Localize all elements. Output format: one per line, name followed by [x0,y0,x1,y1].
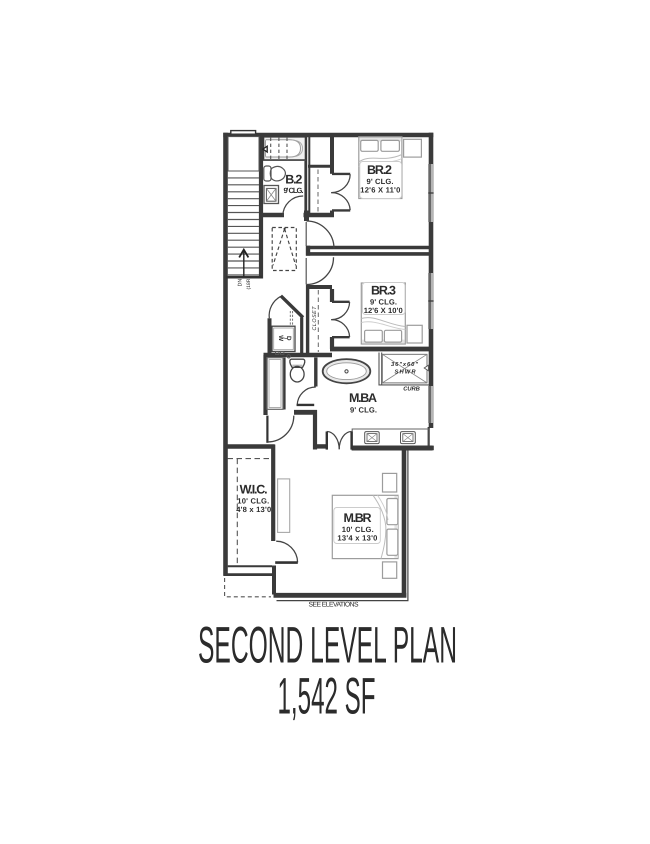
svg-text:9' CLG.: 9' CLG. [284,186,304,195]
svg-text:D: D [285,336,292,341]
svg-text:13'4 x 13'0: 13'4 x 13'0 [337,534,377,543]
svg-text:M.BR: M.BR [344,511,372,525]
svg-text:DN: DN [238,279,244,287]
svg-text:(18R): (18R) [246,277,252,290]
svg-text:SHWR: SHWR [395,369,417,376]
svg-text:1,542 SF: 1,542 SF [278,666,376,724]
svg-text:M.BA: M.BA [349,391,377,405]
svg-text:CURB: CURB [403,385,420,392]
svg-text:SECOND LEVEL PLAN: SECOND LEVEL PLAN [198,615,457,673]
svg-text:W.I.C.: W.I.C. [240,483,268,497]
svg-text:12'6 X 11'0: 12'6 X 11'0 [360,186,400,195]
svg-text:BR.3: BR.3 [371,284,396,298]
svg-text:4'8 x 13'0: 4'8 x 13'0 [236,505,271,514]
svg-text:B.2: B.2 [285,173,302,187]
svg-text:BR.2: BR.2 [367,163,392,177]
svg-text:12'6 X 10'0: 12'6 X 10'0 [364,306,403,315]
svg-text:36"x60": 36"x60" [391,361,418,368]
svg-text:CLOSET: CLOSET [312,306,318,331]
svg-text:SEE ELEVATIONS: SEE ELEVATIONS [309,602,359,609]
svg-text:9' CLG.: 9' CLG. [350,406,377,415]
